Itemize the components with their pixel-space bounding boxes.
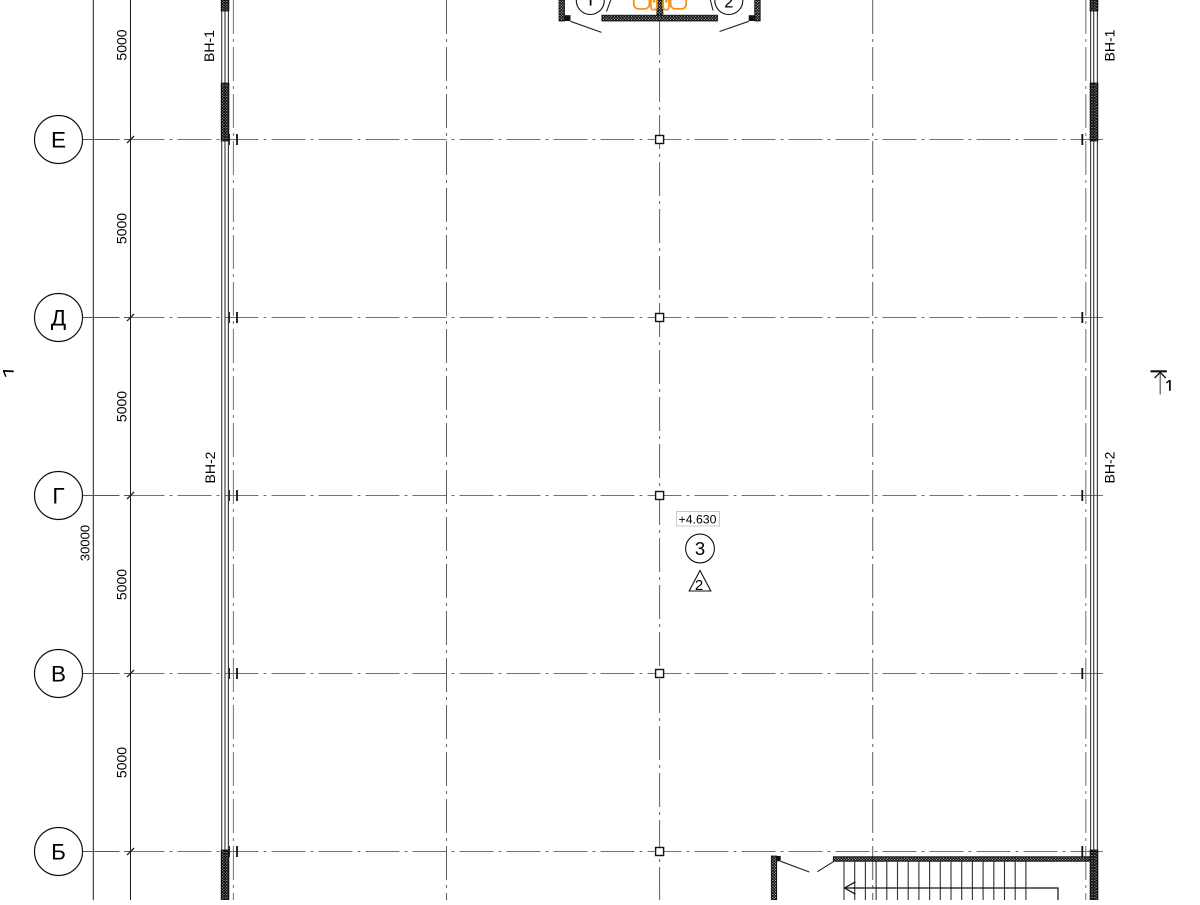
svg-text:ВН-2: ВН-2 <box>202 451 218 483</box>
svg-text:Е: Е <box>51 128 66 153</box>
svg-text:ВН-1: ВН-1 <box>201 30 217 62</box>
svg-text:Г: Г <box>52 484 64 509</box>
svg-text:В: В <box>51 662 66 687</box>
svg-text:5000: 5000 <box>114 213 130 244</box>
svg-text:5000: 5000 <box>114 29 130 60</box>
svg-text:3: 3 <box>695 538 705 559</box>
svg-text:5000: 5000 <box>114 391 130 422</box>
svg-text:Б: Б <box>51 840 66 865</box>
svg-text:ВН-1: ВН-1 <box>1102 29 1118 61</box>
svg-text:+4.630: +4.630 <box>679 513 717 527</box>
svg-text:2: 2 <box>724 0 733 12</box>
svg-text:2: 2 <box>695 577 703 594</box>
svg-text:5000: 5000 <box>114 569 130 600</box>
svg-text:30000: 30000 <box>78 525 93 561</box>
svg-text:5000: 5000 <box>114 747 130 778</box>
svg-text:ВН-2: ВН-2 <box>1102 451 1118 483</box>
svg-text:Д: Д <box>51 306 66 331</box>
